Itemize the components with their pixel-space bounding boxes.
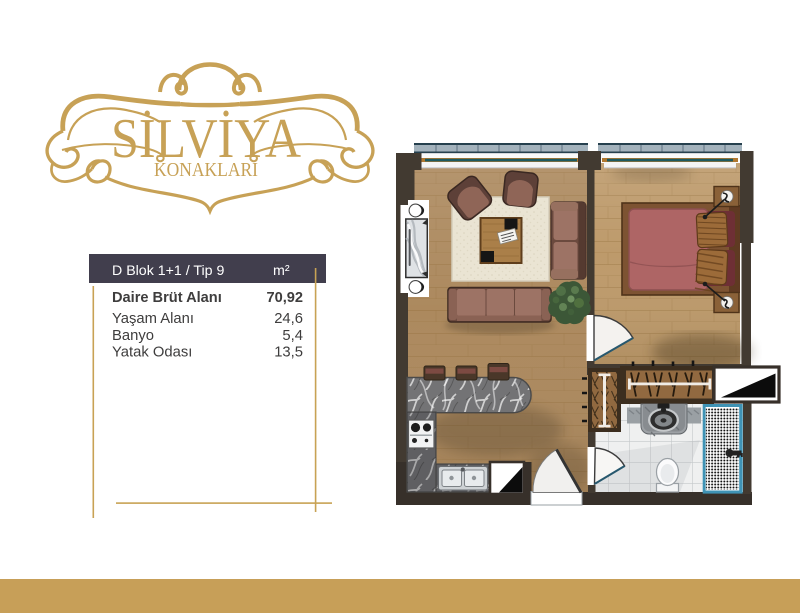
svg-text:Banyo: Banyo xyxy=(112,328,154,344)
svg-text:KONAKLARI: KONAKLARI xyxy=(154,160,258,181)
svg-text:Daire Brüt Alanı: Daire Brüt Alanı xyxy=(112,290,222,306)
svg-text:13,5: 13,5 xyxy=(274,345,303,361)
svg-text:m²: m² xyxy=(273,263,290,279)
svg-text:5,4: 5,4 xyxy=(282,328,303,344)
svg-text:24,6: 24,6 xyxy=(274,311,303,327)
svg-text:Yaşam Alanı: Yaşam Alanı xyxy=(112,311,194,327)
svg-text:D Blok 1+1 / Tip 9: D Blok 1+1 / Tip 9 xyxy=(112,263,224,279)
svg-text:Yatak Odası: Yatak Odası xyxy=(112,345,192,361)
svg-text:70,92: 70,92 xyxy=(266,290,303,306)
